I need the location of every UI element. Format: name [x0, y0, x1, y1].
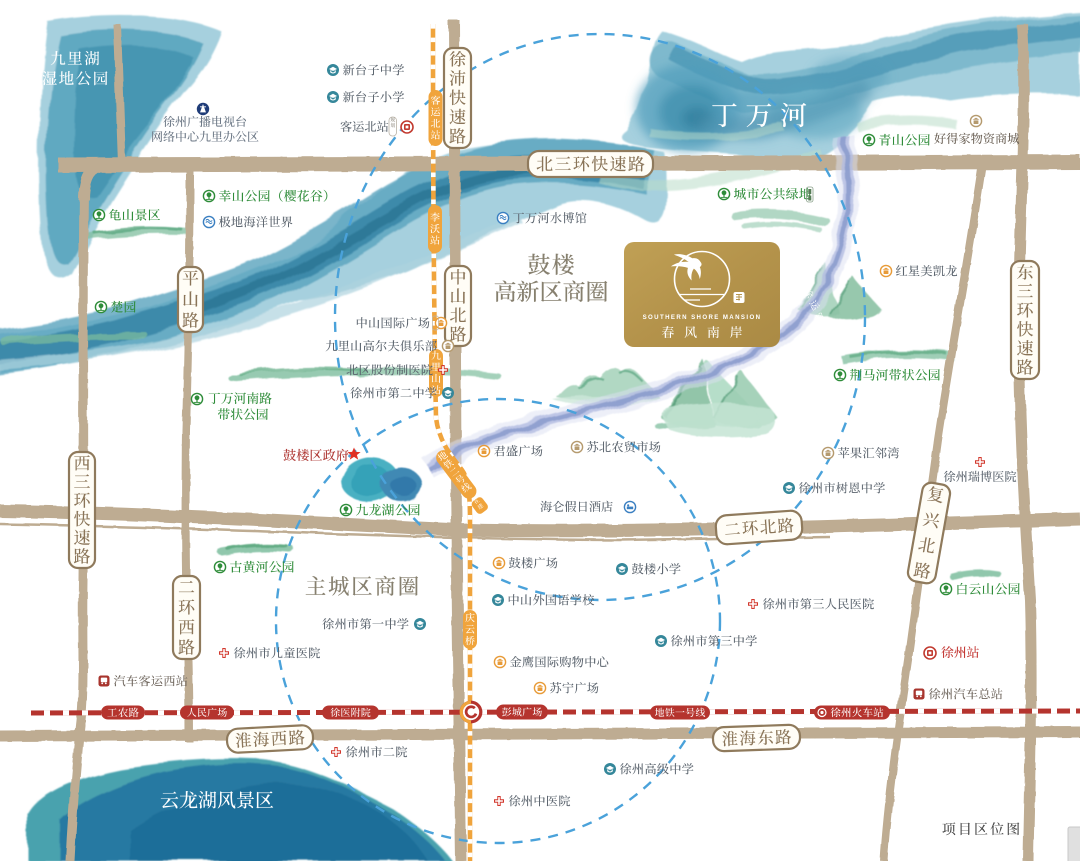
svg-text:SOUTHERN SHORE MANSION: SOUTHERN SHORE MANSION — [643, 314, 762, 321]
